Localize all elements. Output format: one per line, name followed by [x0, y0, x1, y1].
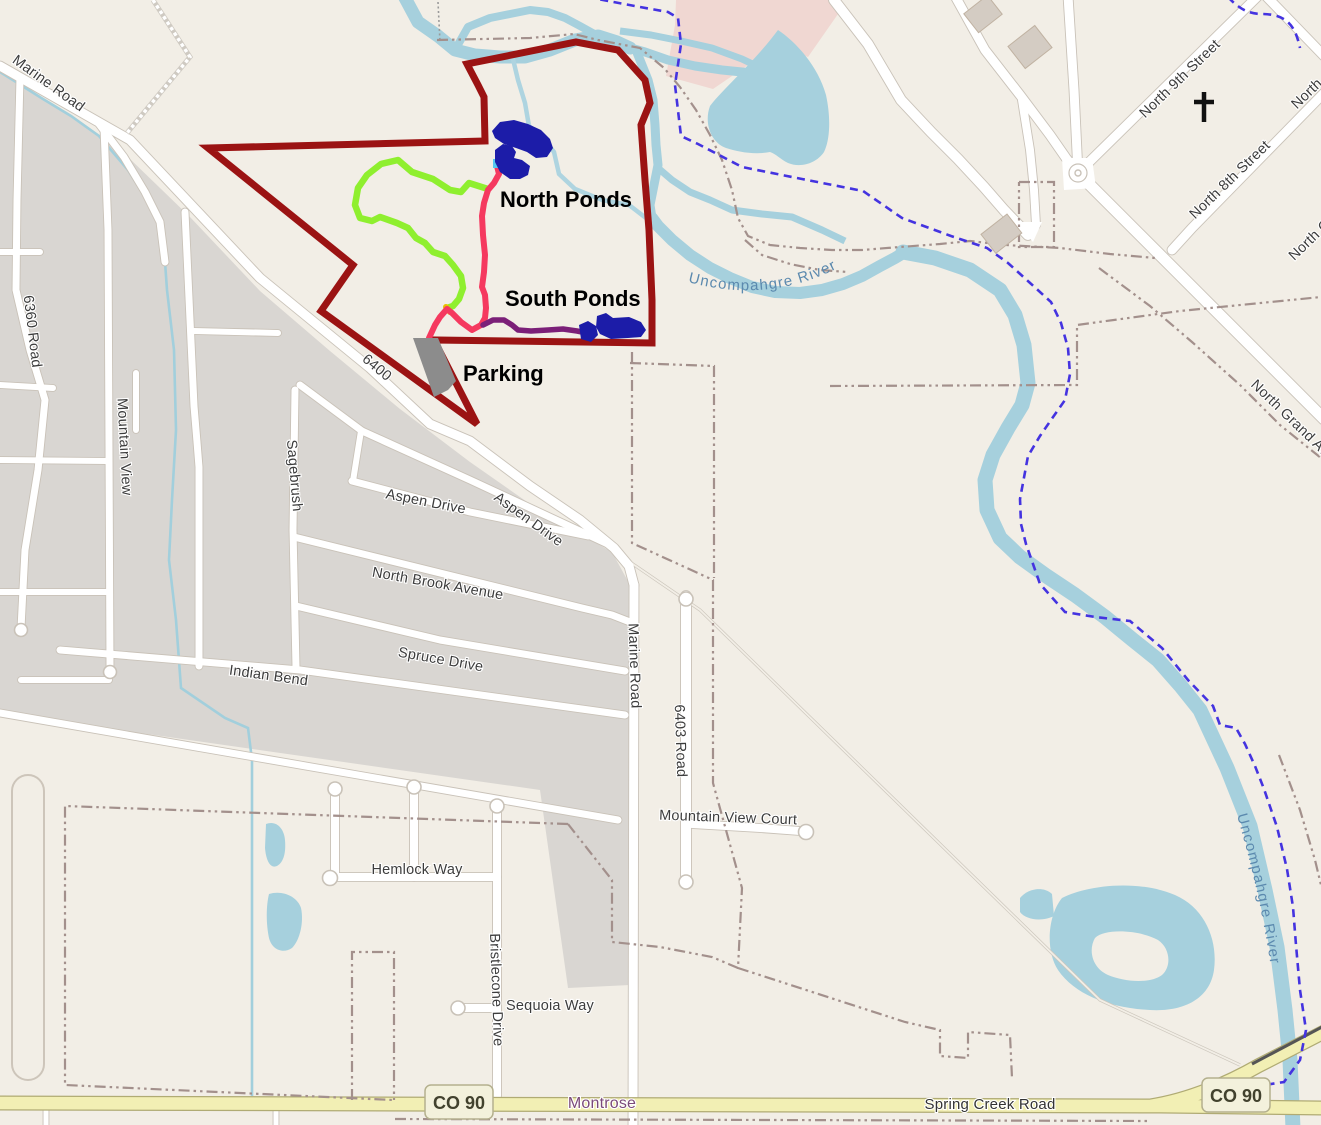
svg-text:Sequoia Way: Sequoia Way	[506, 998, 594, 1014]
svg-text:Hemlock Way: Hemlock Way	[371, 862, 463, 878]
svg-text:Parking: Parking	[463, 361, 544, 386]
svg-text:Marine Road: Marine Road	[625, 623, 644, 709]
svg-text:South Ponds: South Ponds	[505, 286, 641, 311]
svg-text:6403 Road: 6403 Road	[671, 704, 690, 777]
svg-text:North Ponds: North Ponds	[500, 187, 632, 212]
svg-text:CO 90: CO 90	[1210, 1086, 1262, 1106]
svg-text:CO 90: CO 90	[433, 1093, 485, 1113]
svg-text:Spring Creek Road: Spring Creek Road	[925, 1096, 1056, 1113]
svg-text:Montrose: Montrose	[568, 1095, 636, 1112]
